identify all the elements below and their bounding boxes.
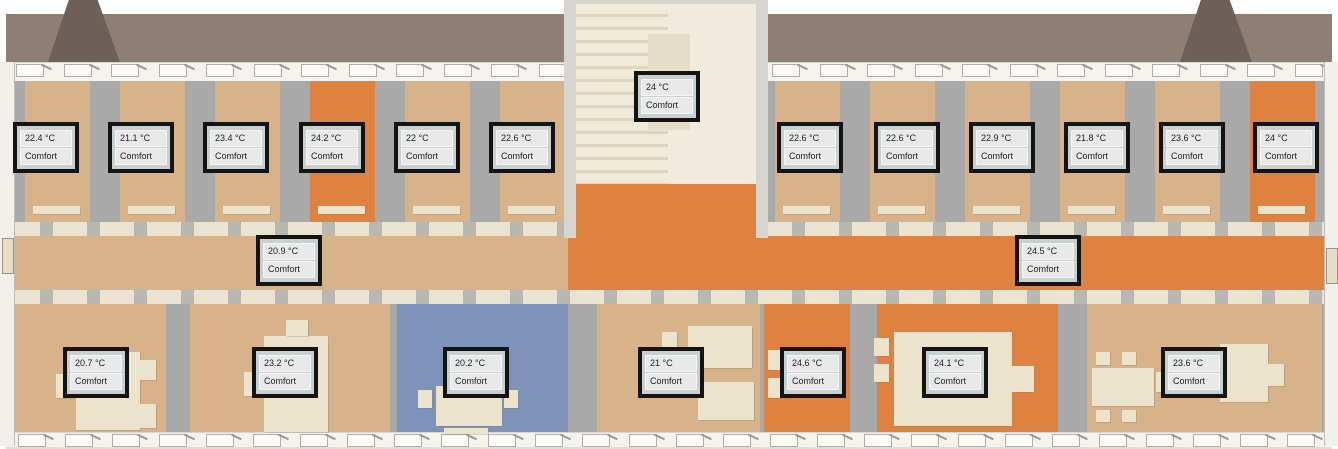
radiator <box>318 206 365 214</box>
window-icon <box>159 434 187 447</box>
furniture <box>1012 366 1034 392</box>
window-icon <box>1193 434 1221 447</box>
radiator <box>33 206 80 214</box>
radiator <box>128 206 175 214</box>
window-icon <box>1295 64 1323 77</box>
temperature-sensor-badge[interactable]: 22.4 °CComfort <box>13 122 79 173</box>
furniture <box>874 338 889 356</box>
window-icon <box>1010 64 1038 77</box>
sensor-temperature: 22.6 °C <box>496 130 548 147</box>
sensor-temperature: 22.9 °C <box>976 130 1028 147</box>
window-icon <box>488 434 516 447</box>
radiator <box>1163 206 1210 214</box>
sensor-temperature: 21.1 °C <box>115 130 167 147</box>
temperature-sensor-badge[interactable]: 22 °CComfort <box>394 122 460 173</box>
temperature-sensor-badge[interactable]: 24.5 °CComfort <box>1015 235 1081 286</box>
sensor-status: Comfort <box>1166 148 1218 165</box>
window-icon <box>864 434 892 447</box>
sensor-temperature: 22.6 °C <box>784 130 836 147</box>
window-icon <box>911 434 939 447</box>
furniture <box>1092 368 1154 406</box>
east-door <box>1326 248 1338 284</box>
window-icon <box>1099 434 1127 447</box>
sensor-temperature: 24 °C <box>1260 130 1312 147</box>
temperature-sensor-badge[interactable]: 22.6 °CComfort <box>489 122 555 173</box>
sensor-temperature: 23.6 °C <box>1168 355 1220 372</box>
sensor-temperature: 22.4 °C <box>20 130 72 147</box>
window-icon <box>1005 434 1033 447</box>
radiator <box>1068 206 1115 214</box>
temperature-sensor-badge[interactable]: 24 °CComfort <box>634 71 700 122</box>
window-icon <box>915 64 943 77</box>
furniture <box>1268 364 1284 386</box>
window-icon <box>676 434 704 447</box>
window-icon <box>441 434 469 447</box>
window-icon <box>1287 434 1315 447</box>
sensor-status: Comfort <box>263 261 315 278</box>
temperature-sensor-badge[interactable]: 22.6 °CComfort <box>874 122 940 173</box>
sensor-status: Comfort <box>306 148 358 165</box>
sensor-temperature: 24.6 °C <box>787 355 839 372</box>
sensor-status: Comfort <box>210 148 262 165</box>
furniture <box>1122 410 1136 422</box>
window-icon <box>1247 64 1275 77</box>
sensor-temperature: 21.8 °C <box>1071 130 1123 147</box>
sensor-status: Comfort <box>787 373 839 390</box>
temperature-sensor-badge[interactable]: 23.4 °CComfort <box>203 122 269 173</box>
sensor-temperature: 21 °C <box>645 355 697 372</box>
window-icon <box>1052 434 1080 447</box>
temperature-sensor-badge[interactable]: 24 °CComfort <box>1253 122 1319 173</box>
furniture <box>1122 352 1136 365</box>
sensor-status: Comfort <box>70 373 122 390</box>
window-icon <box>582 434 610 447</box>
west-door <box>2 238 14 274</box>
furniture <box>1220 344 1268 402</box>
sensor-temperature: 20.9 °C <box>263 243 315 260</box>
sensor-status: Comfort <box>115 148 167 165</box>
sensor-status: Comfort <box>1022 261 1074 278</box>
window-icon <box>1240 434 1268 447</box>
sensor-status: Comfort <box>1071 148 1123 165</box>
window-icon <box>629 434 657 447</box>
window-icon <box>18 434 46 447</box>
window-icon <box>206 64 234 77</box>
sensor-temperature: 24 °C <box>641 79 693 96</box>
sensor-temperature: 20.7 °C <box>70 355 122 372</box>
window-icon <box>349 64 377 77</box>
window-icon <box>770 434 798 447</box>
sensor-temperature: 24.5 °C <box>1022 243 1074 260</box>
sensor-temperature: 22 °C <box>401 130 453 147</box>
temperature-sensor-badge[interactable]: 20.2 °CComfort <box>443 347 509 398</box>
window-icon <box>962 64 990 77</box>
corridor-segment-2 <box>568 236 1332 290</box>
furniture <box>286 320 308 336</box>
window-icon <box>958 434 986 447</box>
sensor-temperature: 23.4 °C <box>210 130 262 147</box>
window-icon <box>254 64 282 77</box>
window-icon <box>64 64 92 77</box>
sensor-temperature: 24.1 °C <box>929 355 981 372</box>
window-icon <box>253 434 281 447</box>
window-icon <box>65 434 93 447</box>
south-facade <box>6 432 1332 449</box>
window-icon <box>1105 64 1133 77</box>
window-icon <box>772 64 800 77</box>
temperature-sensor-badge[interactable]: 21.8 °CComfort <box>1064 122 1130 173</box>
stairwell-floor <box>576 184 756 238</box>
furniture <box>1096 352 1110 365</box>
sensor-status: Comfort <box>450 373 502 390</box>
radiator <box>783 206 830 214</box>
window-icon <box>491 64 519 77</box>
window-icon <box>159 64 187 77</box>
window-icon <box>394 434 422 447</box>
window-icon <box>723 434 751 447</box>
sensor-temperature: 23.6 °C <box>1166 130 1218 147</box>
sensor-status: Comfort <box>929 373 981 390</box>
window-icon <box>817 434 845 447</box>
sensor-status: Comfort <box>401 148 453 165</box>
sensor-status: Comfort <box>496 148 548 165</box>
sensor-temperature: 22.6 °C <box>881 130 933 147</box>
radiator <box>223 206 270 214</box>
temperature-sensor-badge[interactable]: 22.6 °CComfort <box>777 122 843 173</box>
temperature-sensor-badge[interactable]: 23.6 °CComfort <box>1161 347 1227 398</box>
furniture <box>140 360 156 380</box>
furniture <box>444 428 488 434</box>
window-icon <box>301 64 329 77</box>
temperature-sensor-badge[interactable]: 21 °CComfort <box>638 347 704 398</box>
window-icon <box>396 64 424 77</box>
sensor-status: Comfort <box>881 148 933 165</box>
window-icon <box>1146 434 1174 447</box>
window-icon <box>1057 64 1085 77</box>
furniture <box>418 390 432 408</box>
window-icon <box>347 434 375 447</box>
temperature-sensor-badge[interactable]: 21.1 °CComfort <box>108 122 174 173</box>
temperature-sensor-badge[interactable]: 24.1 °CComfort <box>922 347 988 398</box>
window-icon <box>16 64 44 77</box>
furniture <box>1096 410 1110 422</box>
window-icon <box>867 64 895 77</box>
sensor-status: Comfort <box>1168 373 1220 390</box>
temperature-sensor-badge[interactable]: 23.2 °CComfort <box>252 347 318 398</box>
window-icon <box>112 434 140 447</box>
radiator <box>1258 206 1305 214</box>
temperature-sensor-badge[interactable]: 24.6 °CComfort <box>780 347 846 398</box>
sensor-status: Comfort <box>259 373 311 390</box>
furniture <box>662 332 677 347</box>
radiator <box>508 206 555 214</box>
furniture <box>874 364 889 382</box>
temperature-sensor-badge[interactable]: 22.9 °CComfort <box>969 122 1035 173</box>
window-icon <box>300 434 328 447</box>
radiator <box>973 206 1020 214</box>
window-icon <box>206 434 234 447</box>
corridor-south-wall <box>6 290 1332 304</box>
temperature-sensor-badge[interactable]: 20.9 °CComfort <box>256 235 322 286</box>
temperature-sensor-badge[interactable]: 23.6 °CComfort <box>1159 122 1225 173</box>
sensor-status: Comfort <box>20 148 72 165</box>
temperature-sensor-badge[interactable]: 20.7 °CComfort <box>63 347 129 398</box>
sensor-status: Comfort <box>784 148 836 165</box>
sensor-status: Comfort <box>645 373 697 390</box>
window-icon <box>820 64 848 77</box>
window-icon <box>1152 64 1180 77</box>
floor-plan-viewport: 22.4 °CComfort21.1 °CComfort23.4 °CComfo… <box>0 0 1338 449</box>
sensor-status: Comfort <box>1260 148 1312 165</box>
sensor-temperature: 23.2 °C <box>259 355 311 372</box>
window-icon <box>444 64 472 77</box>
window-icon <box>1200 64 1228 77</box>
furniture <box>698 382 754 420</box>
temperature-sensor-badge[interactable]: 24.2 °CComfort <box>299 122 365 173</box>
radiator <box>878 206 925 214</box>
window-icon <box>111 64 139 77</box>
sensor-temperature: 20.2 °C <box>450 355 502 372</box>
sensor-status: Comfort <box>976 148 1028 165</box>
window-icon <box>535 434 563 447</box>
window-icon <box>539 64 567 77</box>
sensor-temperature: 24.2 °C <box>306 130 358 147</box>
furniture <box>140 404 156 428</box>
radiator <box>413 206 460 214</box>
sensor-status: Comfort <box>641 97 693 114</box>
